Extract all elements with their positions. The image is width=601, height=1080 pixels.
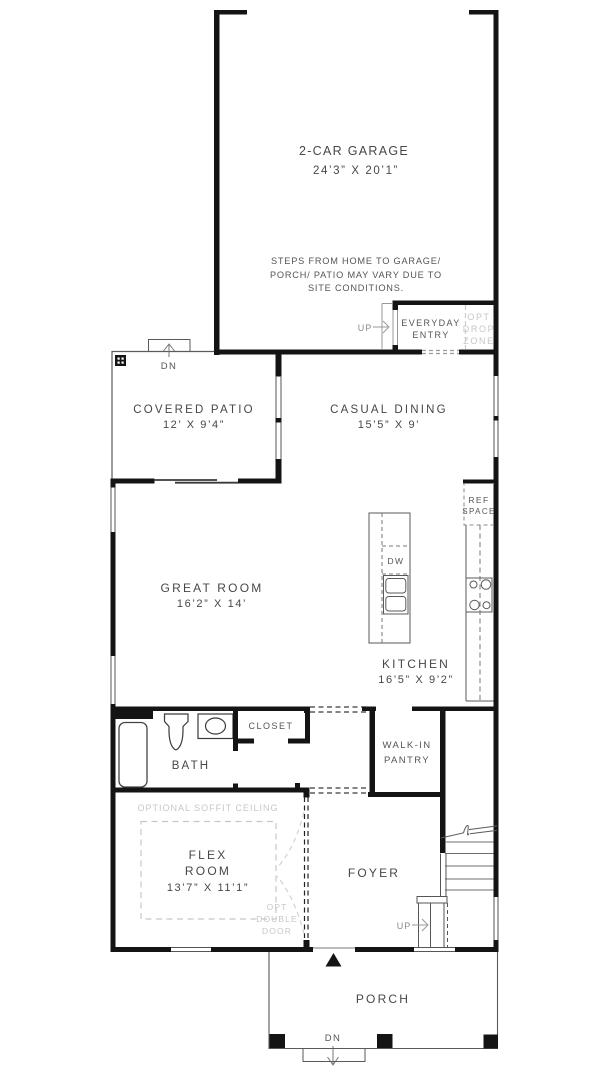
svg-text:DW: DW	[388, 556, 405, 566]
svg-text:13’7” X 11’1”: 13’7” X 11’1”	[167, 882, 249, 894]
svg-text:REF: REF	[468, 495, 489, 505]
svg-text:FLEX: FLEX	[189, 848, 228, 862]
svg-text:WALK-IN: WALK-IN	[382, 740, 431, 751]
svg-text:24’3” X 20’1”: 24’3” X 20’1”	[313, 165, 399, 177]
svg-text:DROP: DROP	[463, 324, 495, 334]
svg-text:SITE CONDITIONS.: SITE CONDITIONS.	[308, 283, 404, 293]
svg-text:DN: DN	[161, 361, 178, 372]
svg-text:ZONE: ZONE	[463, 336, 494, 346]
svg-text:CLOSET: CLOSET	[248, 721, 293, 731]
svg-text:16’2” X 14’: 16’2” X 14’	[177, 598, 247, 610]
svg-text:15’5” X 9’: 15’5” X 9’	[358, 419, 420, 431]
svg-text:DOUBLE: DOUBLE	[256, 914, 298, 924]
svg-text:DN: DN	[325, 1033, 342, 1044]
svg-text:UP: UP	[358, 323, 373, 333]
svg-text:OPTIONAL SOFFIT CEILING: OPTIONAL SOFFIT CEILING	[137, 803, 278, 813]
svg-text:12’ X 9’4”: 12’ X 9’4”	[163, 419, 225, 431]
svg-text:ENTRY: ENTRY	[412, 330, 449, 340]
svg-text:2-CAR GARAGE: 2-CAR GARAGE	[299, 144, 409, 158]
svg-text:16’5” X 9’2”: 16’5” X 9’2”	[378, 674, 453, 686]
svg-text:BATH: BATH	[172, 760, 211, 772]
svg-text:DOOR: DOOR	[262, 926, 292, 936]
svg-text:OPT: OPT	[267, 902, 288, 912]
svg-text:COVERED PATIO: COVERED PATIO	[133, 404, 254, 416]
svg-text:UP: UP	[397, 921, 412, 931]
svg-text:CASUAL DINING: CASUAL DINING	[330, 404, 448, 416]
svg-text:EVERYDAY: EVERYDAY	[401, 318, 460, 328]
svg-text:KITCHEN: KITCHEN	[382, 657, 450, 671]
svg-text:PORCH: PORCH	[356, 992, 410, 1006]
svg-text:SPACE: SPACE	[462, 507, 496, 516]
svg-text:STEPS FROM HOME TO GARAGE/: STEPS FROM HOME TO GARAGE/	[271, 256, 441, 266]
svg-text:GREAT ROOM: GREAT ROOM	[161, 581, 264, 595]
svg-text:FOYER: FOYER	[348, 866, 400, 880]
svg-text:OPT: OPT	[467, 312, 490, 322]
svg-text:ROOM: ROOM	[185, 864, 231, 878]
svg-text:PANTRY: PANTRY	[384, 755, 430, 766]
svg-text:PORCH/ PATIO MAY VARY DUE TO: PORCH/ PATIO MAY VARY DUE TO	[270, 270, 442, 280]
